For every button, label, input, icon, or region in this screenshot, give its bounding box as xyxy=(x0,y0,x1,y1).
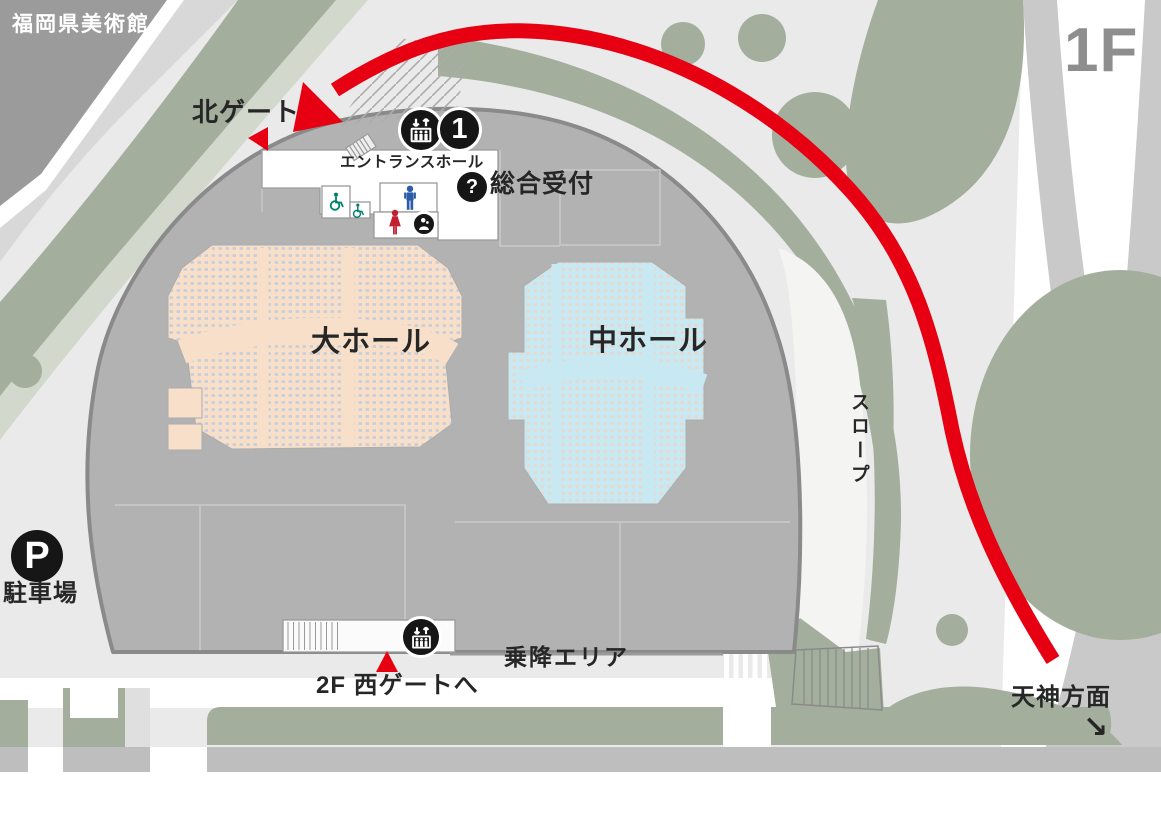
point-1-badge: 1 xyxy=(437,107,482,152)
large-hall-room xyxy=(168,424,202,450)
nursing-room-badge xyxy=(411,211,437,237)
map-canvas xyxy=(0,0,1161,817)
elevator-badge-south xyxy=(400,616,442,658)
entrance-hall-label: エントランスホール xyxy=(340,155,484,171)
greenery-circle xyxy=(8,354,42,388)
tenjin-label: 天神方面 xyxy=(1011,685,1111,710)
gray-column xyxy=(125,688,150,747)
large-hall-label: 大ホール xyxy=(311,327,431,357)
medium-hall-label: 中ホール xyxy=(588,326,708,356)
strip-gap xyxy=(28,747,63,772)
floor-map-1f: 福岡県美術館 1F 北ゲート エントランスホール 総合受付 大ホール 中ホール … xyxy=(0,0,1161,817)
strip-gap xyxy=(150,747,207,772)
parking-badge: P xyxy=(11,530,63,582)
greenery-block xyxy=(0,700,28,747)
museum-label: 福岡県美術館 xyxy=(12,14,150,36)
question-badge: ? xyxy=(457,172,487,202)
greenery-circle xyxy=(936,614,968,646)
west-gate-label: 2F 西ゲートへ xyxy=(316,673,479,698)
floor-label: 1F xyxy=(1064,18,1138,83)
parking-label: 駐車場 xyxy=(3,581,78,606)
boarding-area-label: 乗降エリア xyxy=(504,645,629,669)
elevator-icon xyxy=(406,115,436,145)
nursing-room-icon xyxy=(415,215,433,233)
north-gate-label: 北ゲート xyxy=(192,99,300,126)
tenjin-direction-arrow: ↘ xyxy=(1083,712,1109,744)
block-notch xyxy=(70,688,118,718)
large-hall-room xyxy=(168,388,202,418)
elevator-icon xyxy=(408,624,435,651)
reception-label: 総合受付 xyxy=(490,171,594,197)
greenery-circle xyxy=(738,14,786,62)
slope-label: スロープ xyxy=(848,392,868,507)
